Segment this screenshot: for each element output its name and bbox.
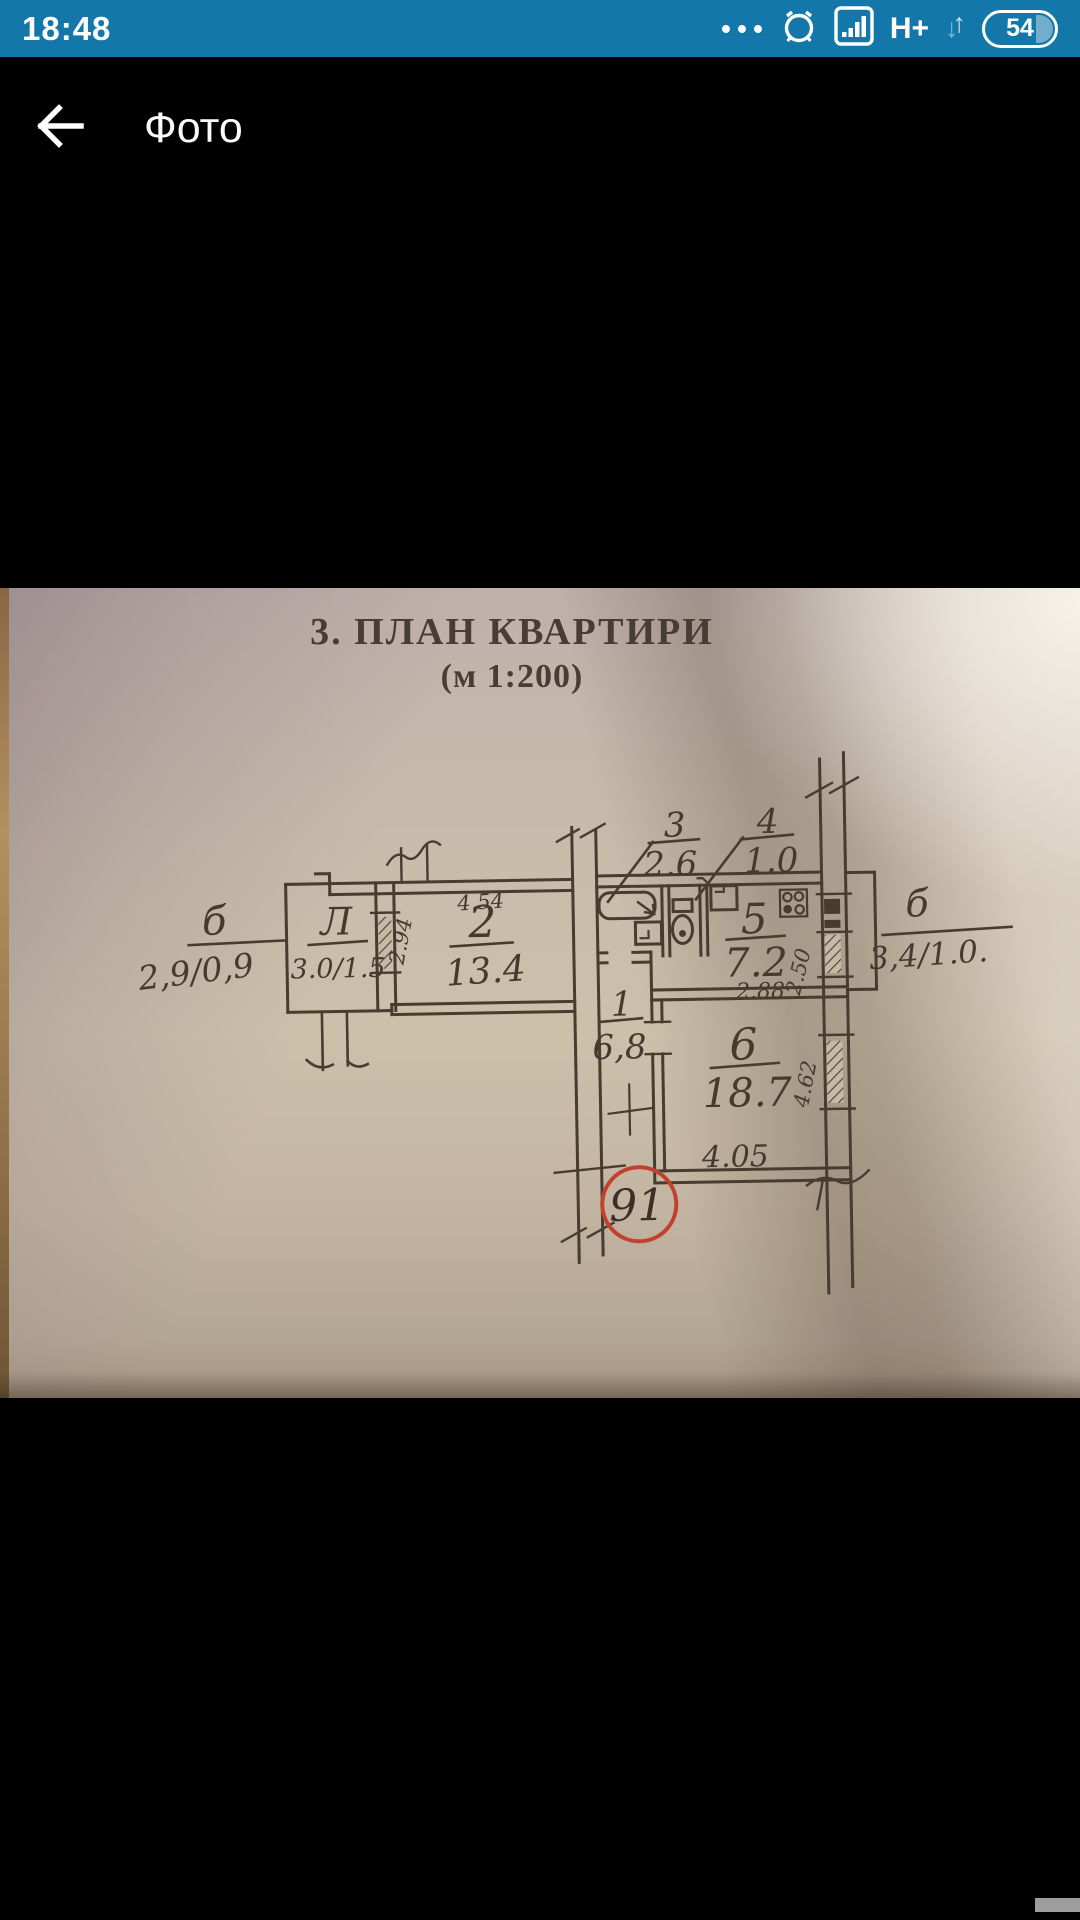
room2-area: 13.4 xyxy=(444,948,527,994)
phone-screen: { "status_bar": { "time": "18:48", "netw… xyxy=(0,0,1080,1920)
back-button[interactable] xyxy=(0,57,120,200)
room5-number: 5 xyxy=(741,894,769,943)
scroll-indicator[interactable] xyxy=(1035,1898,1080,1912)
plan-scale: (м 1:200) xyxy=(441,658,584,695)
room6-number: 6 xyxy=(729,1019,758,1070)
back-arrow-icon xyxy=(35,103,85,154)
wall-break-top-left xyxy=(387,841,441,882)
stove xyxy=(780,889,807,916)
alarm-icon xyxy=(780,7,818,50)
room4-area: 1.0 xyxy=(744,840,799,881)
room6-area: 18.7 xyxy=(702,1070,792,1118)
apartment-number: 91 xyxy=(609,1180,666,1232)
data-transfer-icon: ↓↑ xyxy=(945,15,966,42)
photo-shadow xyxy=(0,1372,1080,1398)
room6-width: 4.05 xyxy=(701,1139,769,1175)
network-type-label: H+ xyxy=(890,12,929,46)
bathtub xyxy=(599,892,655,919)
signal-strength-icon xyxy=(834,6,874,51)
room6-depth: 4.62 xyxy=(789,1059,822,1110)
room5-width: 2.88 xyxy=(735,979,785,1005)
toilet xyxy=(672,899,693,943)
plan-title: 3. ПЛАН КВАРТИРИ xyxy=(310,611,714,653)
room1-number: 1 xyxy=(611,984,633,1024)
washbasin xyxy=(635,922,661,944)
balcony-left-dims: 2,9/0,9 xyxy=(135,945,256,998)
wall-right-building xyxy=(799,752,870,1293)
battery-percent: 54 xyxy=(1006,14,1034,43)
more-notifications-icon xyxy=(722,25,762,33)
app-bar: Фото xyxy=(0,57,1080,200)
room1-area: 6,8 xyxy=(592,1027,647,1068)
room3-area: 2.6 xyxy=(642,844,698,885)
balcony-right-dims: 3,4/1.0. xyxy=(868,933,989,977)
balcony-right-letter: б xyxy=(905,881,930,925)
room2-number: 2 xyxy=(467,897,497,948)
room3-number: 3 xyxy=(663,805,685,845)
page-title: Фото xyxy=(144,104,243,153)
clock-time: 18:48 xyxy=(22,10,111,48)
balcony-left-letter: б xyxy=(202,898,228,944)
loggia-dims: 3.0/1.5 xyxy=(290,953,386,986)
status-bar: 18:48 H+ ↓ xyxy=(0,0,1080,57)
balcony-left-stub xyxy=(306,1011,368,1070)
floor-plan-drawing: 3. ПЛАН КВАРТИРИ (м 1:200) xyxy=(0,588,1080,1398)
loggia-letter: Л xyxy=(318,899,354,944)
room4-number: 4 xyxy=(755,802,778,842)
photo-floor-plan[interactable]: 3. ПЛАН КВАРТИРИ (м 1:200) xyxy=(0,588,1080,1398)
sink xyxy=(698,878,738,911)
battery-indicator: 54 xyxy=(982,10,1058,48)
